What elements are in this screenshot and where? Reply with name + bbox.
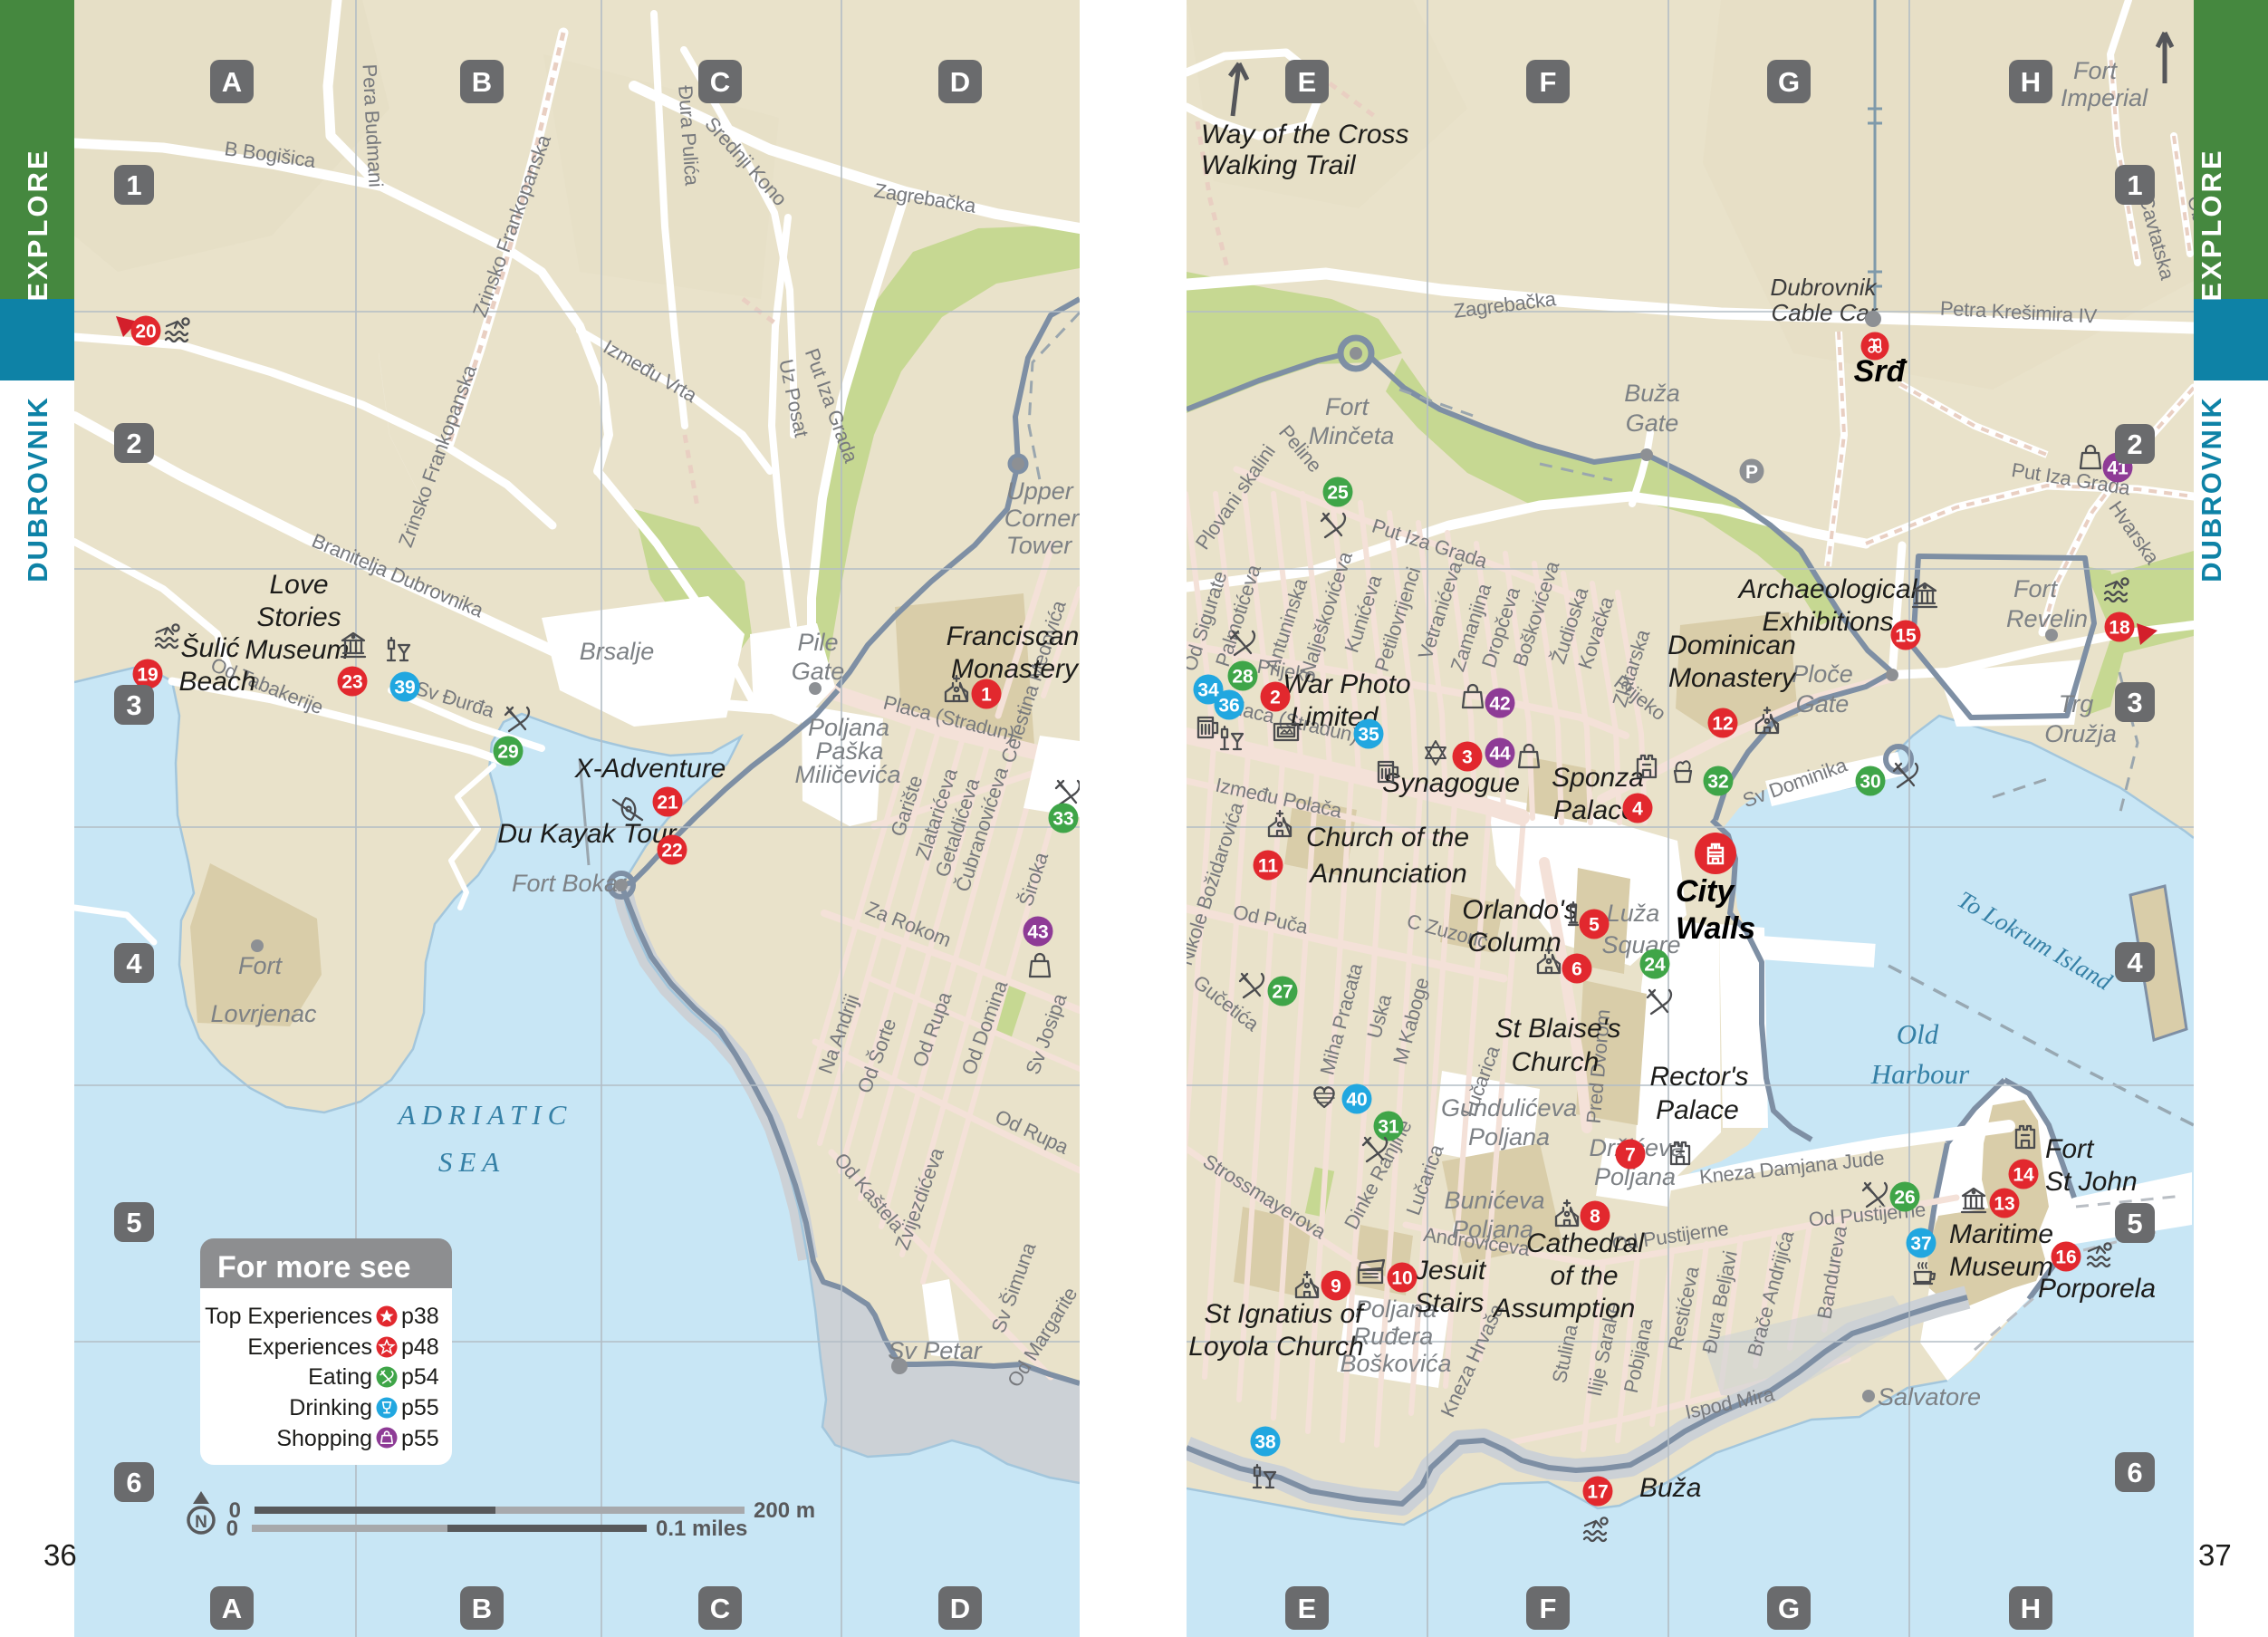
svg-text:Du Kayak Tour: Du Kayak Tour [497,819,677,849]
svg-text:G: G [1778,66,1800,98]
svg-text:Fort: Fort [238,952,283,979]
svg-text:Beach: Beach [178,667,255,697]
svg-text:Shopping: Shopping [276,1426,372,1451]
svg-text:Fort: Fort [1325,393,1370,420]
svg-text:City: City [1676,874,1735,909]
svg-text:DUBROVNIK: DUBROVNIK [2196,396,2227,583]
svg-text:EXPLORE: EXPLORE [2196,148,2227,301]
svg-text:33: 33 [1052,808,1073,829]
svg-text:Harbour: Harbour [1870,1058,1970,1090]
svg-text:Tower: Tower [1006,532,1073,559]
svg-text:18: 18 [2109,617,2130,638]
svg-text:SEA: SEA [438,1146,505,1178]
svg-text:6: 6 [2127,1457,2142,1488]
svg-text:Stairs: Stairs [1415,1288,1485,1318]
svg-text:Salvatore: Salvatore [1878,1383,1981,1411]
svg-text:5: 5 [126,1207,141,1238]
svg-text:6: 6 [126,1467,141,1498]
svg-text:5: 5 [1589,914,1600,935]
svg-text:15: 15 [1895,625,1917,646]
svg-text:4: 4 [2127,947,2143,978]
svg-text:E: E [1298,66,1317,98]
svg-text:9: 9 [1331,1276,1341,1296]
svg-text:Annunciation: Annunciation [1308,859,1466,889]
svg-text:5: 5 [2127,1208,2142,1239]
svg-text:Revelin: Revelin [2006,605,2088,632]
svg-text:St Blaise's: St Blaise's [1494,1014,1620,1044]
svg-text:24: 24 [1644,954,1666,975]
svg-text:F: F [1540,1593,1557,1624]
svg-text:War Photo: War Photo [1283,669,1410,699]
svg-text:20: 20 [135,321,156,342]
svg-text:Assumption: Assumption [1492,1294,1636,1324]
svg-text:3: 3 [1462,746,1473,767]
svg-text:Cathedral: Cathedral [1526,1228,1645,1258]
svg-text:Eating: Eating [308,1364,372,1390]
svg-text:Fort: Fort [2045,1134,2095,1164]
svg-text:EXPLORE: EXPLORE [22,148,53,301]
svg-text:N: N [195,1513,207,1532]
svg-text:Buža: Buža [1639,1473,1701,1503]
svg-text:31: 31 [1378,1116,1399,1137]
svg-text:Poljana: Poljana [1452,1216,1533,1243]
svg-text:D: D [950,1593,970,1624]
svg-text:Brsalje: Brsalje [580,638,655,665]
svg-text:Gundulićeva: Gundulićeva [1441,1094,1577,1122]
svg-text:Experiences: Experiences [247,1334,372,1360]
svg-text:Upper: Upper [1006,477,1074,505]
svg-text:D: D [950,66,970,98]
svg-text:38: 38 [1254,1431,1276,1452]
svg-text:21: 21 [657,792,678,813]
svg-text:A: A [222,1593,242,1624]
svg-text:B: B [472,66,492,98]
svg-text:16: 16 [2055,1247,2076,1267]
svg-text:p55: p55 [401,1395,439,1420]
svg-text:44: 44 [1489,743,1511,764]
svg-text:Franciscan: Franciscan [947,621,1080,651]
svg-text:40: 40 [1346,1089,1367,1110]
svg-text:X-Adventure: X-Adventure [574,754,726,784]
svg-text:22: 22 [661,840,682,861]
svg-text:Lovrjenac: Lovrjenac [210,1000,317,1027]
svg-text:34: 34 [1197,679,1219,700]
svg-text:p55: p55 [401,1426,439,1451]
svg-text:17: 17 [1587,1481,1608,1502]
svg-text:39: 39 [394,677,415,698]
svg-text:P: P [1745,462,1758,483]
svg-text:36: 36 [43,1538,77,1572]
svg-text:6: 6 [1571,958,1582,979]
svg-text:B: B [472,1593,492,1624]
svg-text:Srđ: Srđ [1854,354,1908,389]
svg-text:Gate: Gate [792,658,845,685]
svg-text:DUBROVNIK: DUBROVNIK [22,396,53,583]
svg-text:Jesuit: Jesuit [1414,1256,1487,1286]
svg-text:Porporela: Porporela [2038,1274,2156,1304]
svg-text:14: 14 [2013,1164,2034,1185]
svg-text:Ploče: Ploče [1792,660,1853,688]
svg-text:7: 7 [1625,1144,1636,1165]
svg-text:Walking Trail: Walking Trail [1201,150,1357,180]
svg-text:E: E [1298,1593,1317,1624]
svg-text:27: 27 [1272,981,1293,1002]
svg-text:0: 0 [226,1517,238,1541]
svg-text:Pile: Pile [797,629,838,656]
svg-text:11: 11 [1258,855,1279,876]
svg-text:37: 37 [1910,1233,1931,1254]
svg-text:3: 3 [126,689,141,721]
svg-text:4: 4 [1632,798,1643,819]
svg-text:37: 37 [2198,1538,2232,1572]
svg-text:Way of the Cross: Way of the Cross [1201,120,1409,149]
svg-text:1: 1 [2127,169,2142,201]
svg-text:29: 29 [497,741,518,762]
svg-text:43: 43 [1027,921,1048,942]
svg-text:of the: of the [1550,1261,1618,1291]
svg-text:Old: Old [1897,1018,1939,1050]
svg-text:30: 30 [1860,771,1880,792]
svg-text:Archaeological: Archaeological [1737,574,1918,604]
svg-text:200 m: 200 m [754,1498,815,1523]
svg-text:3: 3 [2127,687,2142,718]
svg-text:Oružja: Oružja [2044,720,2117,747]
svg-text:Stories: Stories [256,602,341,632]
svg-text:Church: Church [1512,1047,1600,1077]
svg-text:C: C [710,1593,730,1624]
svg-text:32: 32 [1707,771,1728,792]
svg-text:Šulić: Šulić [180,632,239,663]
svg-text:Museum: Museum [245,635,349,665]
svg-text:0.1 miles: 0.1 miles [656,1517,747,1541]
svg-text:Corner: Corner [1004,505,1081,532]
svg-text:Fort: Fort [2073,57,2119,84]
svg-text:2: 2 [126,428,141,459]
svg-text:25: 25 [1327,482,1349,503]
svg-text:G: G [1778,1593,1800,1624]
svg-text:p38: p38 [401,1304,439,1329]
svg-text:Trg: Trg [2059,690,2094,717]
svg-text:Sv Petar: Sv Petar [888,1337,983,1364]
svg-text:12: 12 [1712,713,1733,734]
svg-text:Walls: Walls [1676,911,1755,946]
svg-text:Ruđera: Ruđera [1353,1323,1434,1350]
svg-text:Buža: Buža [1624,380,1680,407]
svg-text:St Ignatius of: St Ignatius of [1204,1299,1365,1329]
svg-text:35: 35 [1358,724,1379,745]
svg-text:Love: Love [269,570,328,600]
svg-text:F: F [1540,66,1557,98]
svg-text:For more see: For more see [217,1250,411,1285]
svg-text:36: 36 [1218,695,1239,716]
svg-text:8: 8 [1590,1206,1600,1227]
svg-text:26: 26 [1894,1187,1915,1208]
svg-text:Dubrovnik: Dubrovnik [1770,274,1878,301]
svg-text:Synagogue: Synagogue [1382,768,1520,798]
svg-text:2: 2 [2127,429,2142,460]
svg-text:Square: Square [1601,931,1680,958]
svg-text:Drinking: Drinking [289,1395,372,1420]
svg-text:p54: p54 [401,1364,439,1390]
svg-text:Miličevića: Miličevića [794,761,900,788]
svg-text:St John: St John [2045,1167,2138,1197]
svg-text:28: 28 [1232,666,1254,687]
svg-text:p48: p48 [401,1334,439,1360]
svg-text:Column: Column [1467,928,1561,958]
svg-text:H: H [2021,66,2041,98]
svg-text:Maritime: Maritime [1949,1219,2053,1249]
svg-text:Exhibitions: Exhibitions [1762,607,1893,637]
svg-text:Poljana: Poljana [1468,1123,1550,1151]
svg-text:1: 1 [126,169,141,201]
svg-text:Minčeta: Minčeta [1309,422,1395,449]
svg-text:Palace: Palace [1656,1095,1739,1125]
svg-text:13: 13 [1994,1193,2014,1214]
svg-text:Luža: Luža [1607,900,1660,927]
svg-text:Fort: Fort [2013,575,2059,602]
svg-text:Fort Bokar: Fort Bokar [512,870,627,897]
svg-text:C: C [710,66,730,98]
svg-text:Sponza: Sponza [1552,763,1644,793]
svg-text:Top Experiences: Top Experiences [205,1304,372,1329]
svg-text:Gate: Gate [1626,409,1679,437]
svg-text:1: 1 [981,684,992,705]
svg-text:Orlando's: Orlando's [1462,895,1577,925]
svg-text:ADRIATIC: ADRIATIC [397,1099,573,1131]
svg-text:4: 4 [126,948,142,979]
svg-text:23: 23 [341,671,362,692]
svg-text:Loyola Church: Loyola Church [1188,1332,1363,1362]
svg-text:Rector's: Rector's [1649,1062,1748,1092]
svg-text:Cable Car: Cable Car [1771,299,1878,326]
svg-text:Monastery: Monastery [1668,663,1797,693]
svg-text:42: 42 [1489,693,1510,714]
svg-text:10: 10 [1391,1267,1412,1288]
svg-text:19: 19 [137,664,158,685]
svg-text:Bunićeva: Bunićeva [1444,1187,1544,1214]
svg-text:H: H [2021,1593,2041,1624]
svg-text:2: 2 [1270,687,1281,708]
svg-text:Imperial: Imperial [2061,84,2148,111]
svg-text:Monastery: Monastery [951,654,1080,684]
svg-text:Church of the: Church of the [1306,823,1469,852]
svg-text:Gate: Gate [1796,690,1850,717]
svg-text:A: A [222,66,242,98]
